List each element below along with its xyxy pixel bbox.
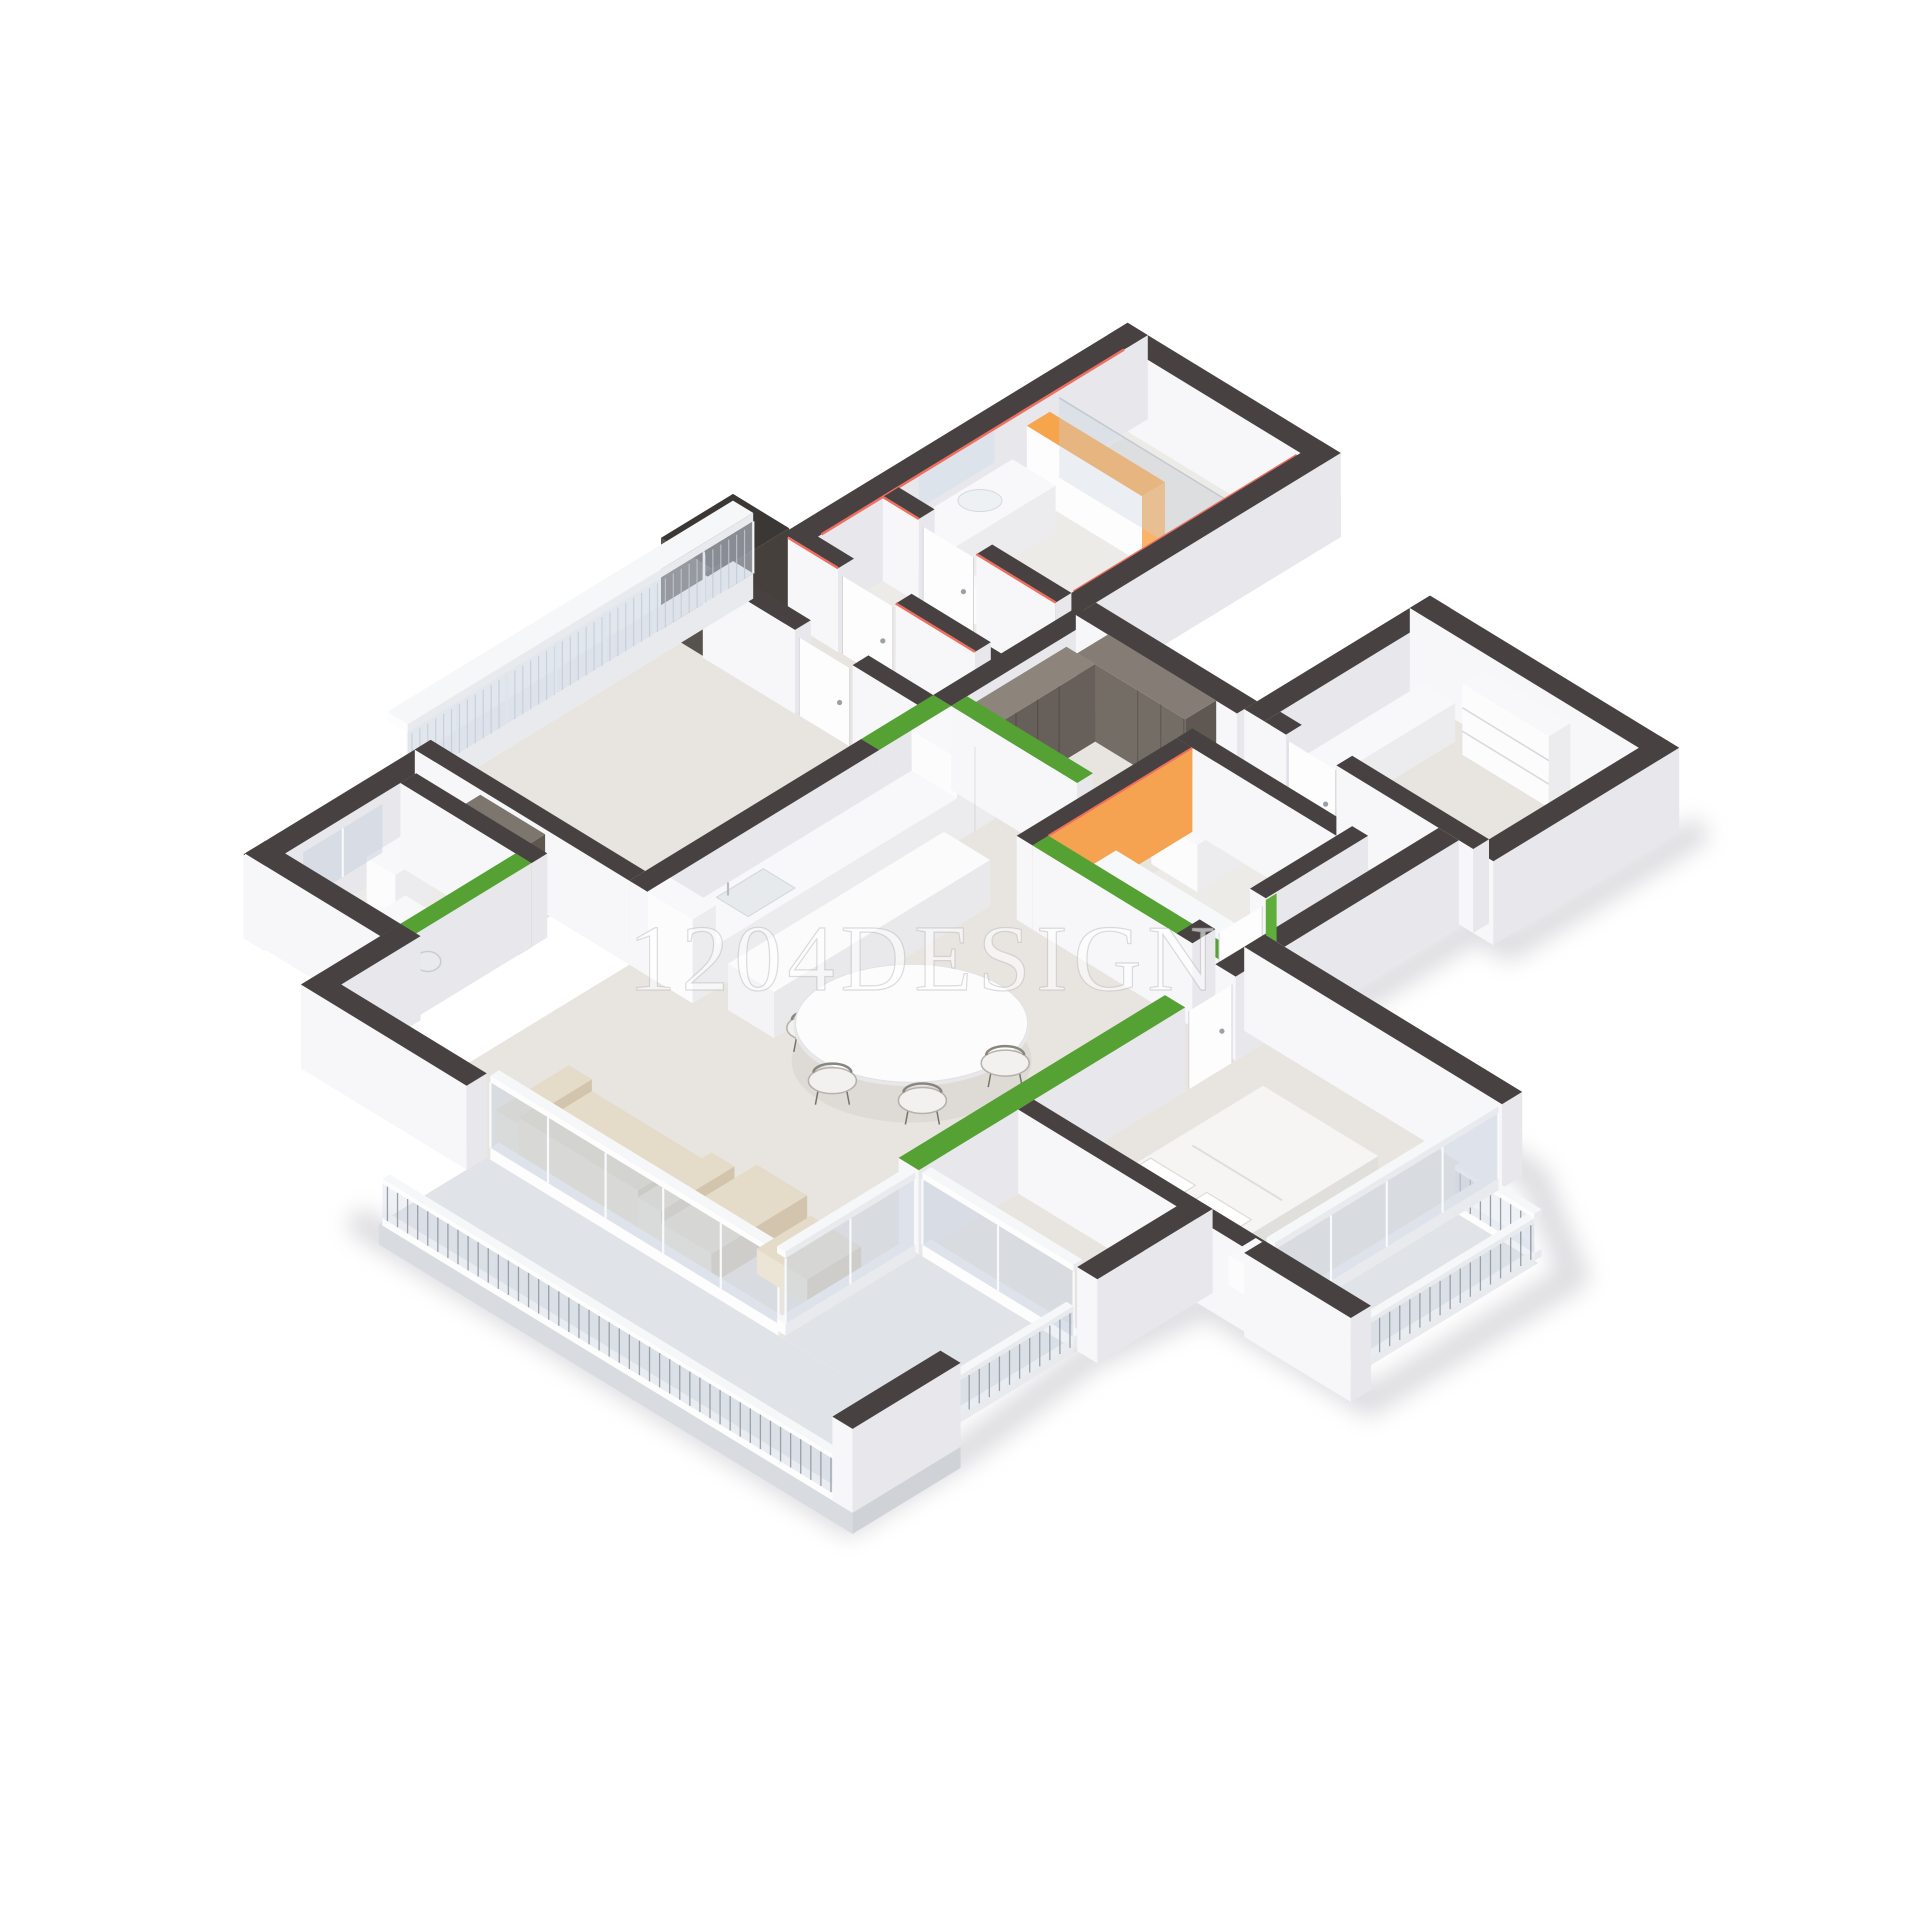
isometric-scene: 1204DESIGN bbox=[0, 0, 1920, 1920]
wall bbox=[531, 853, 547, 947]
wall bbox=[1077, 1267, 1097, 1363]
balcony-wall bbox=[1351, 1306, 1371, 1402]
watermark: 1204DESIGN bbox=[629, 907, 1222, 1011]
chair bbox=[808, 1068, 856, 1094]
door-handle bbox=[1219, 1029, 1224, 1034]
wall bbox=[1502, 1092, 1522, 1188]
wing-basin bbox=[958, 490, 1002, 512]
wall bbox=[1473, 839, 1489, 933]
exterior-wall bbox=[467, 1073, 487, 1169]
door-handle bbox=[1323, 802, 1328, 807]
door-handle bbox=[880, 638, 885, 643]
balcony-end-wall bbox=[832, 1417, 852, 1513]
chair bbox=[981, 1050, 1029, 1076]
door-handle bbox=[837, 700, 842, 705]
chair bbox=[898, 1087, 946, 1113]
floorplan-render: 1204DESIGN bbox=[0, 0, 1920, 1920]
door-handle bbox=[961, 589, 966, 594]
